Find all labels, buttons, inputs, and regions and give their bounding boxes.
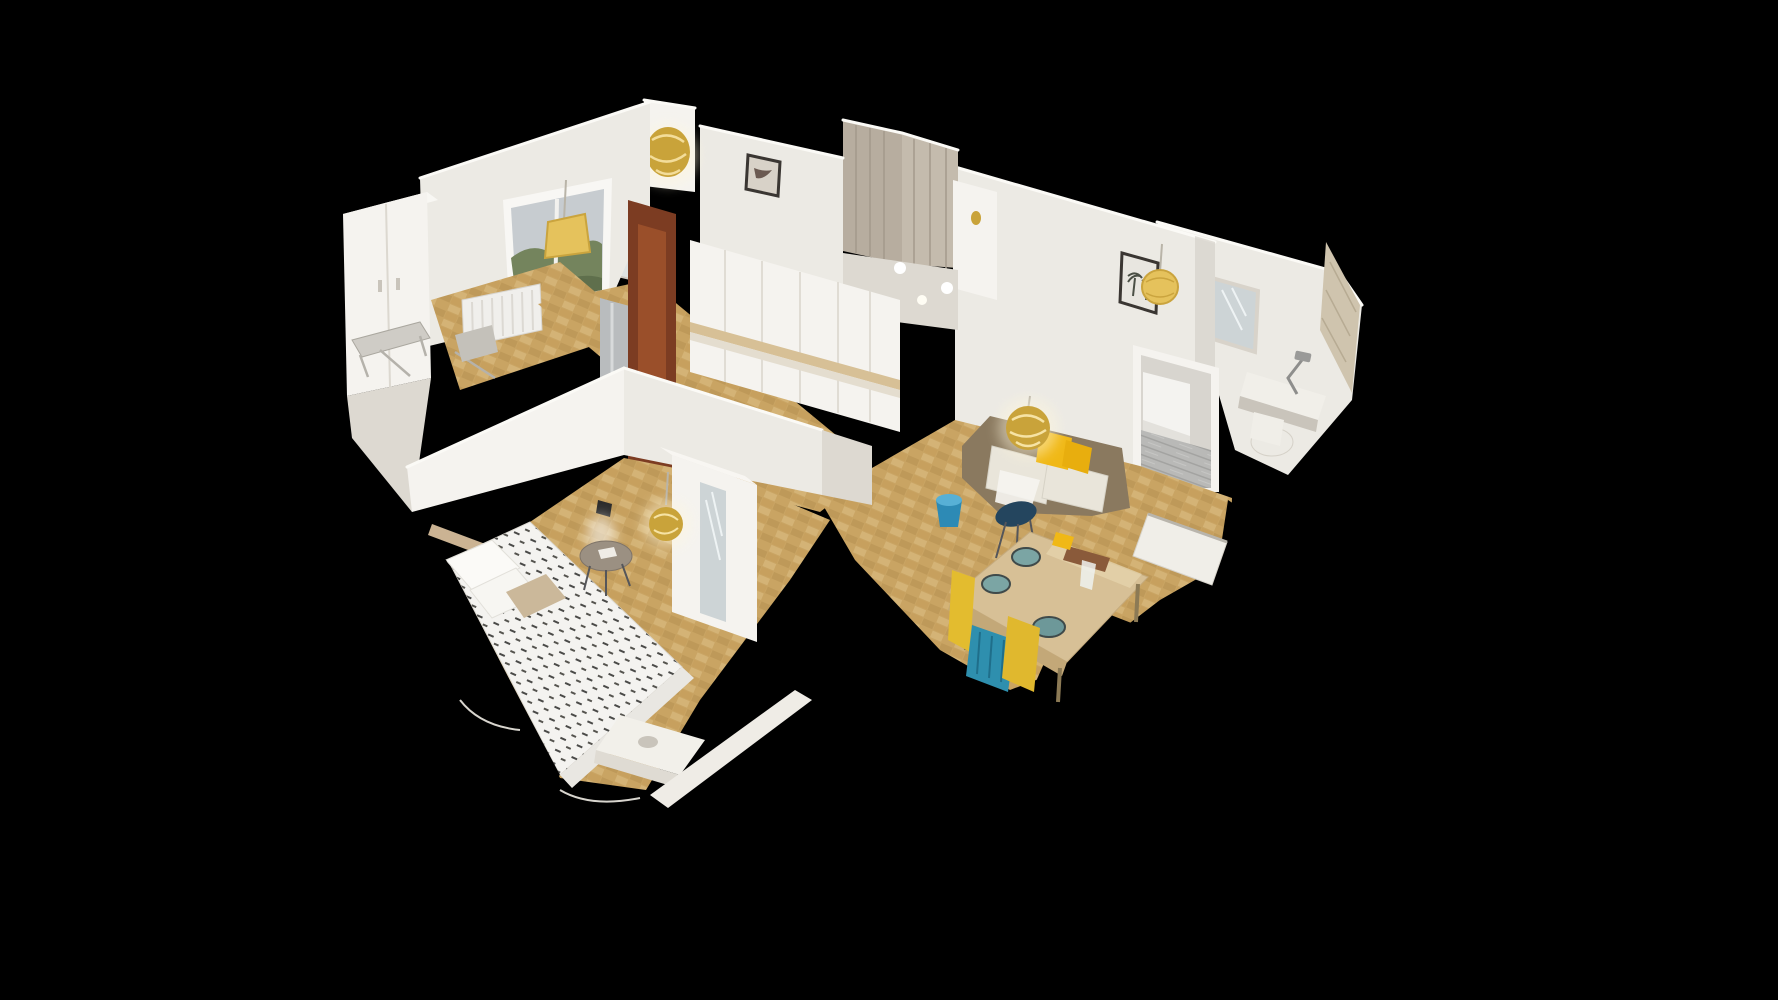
- bucket-rim: [936, 494, 962, 506]
- white-door: [953, 180, 997, 300]
- ceiling-spotlight: [917, 295, 927, 305]
- yellow-lampshade: [545, 214, 590, 258]
- desk-object: [638, 736, 658, 748]
- gold-door-knocker: [971, 211, 981, 225]
- wardrobe-handle: [396, 278, 400, 290]
- grey-plank-wall-left: [843, 120, 902, 264]
- gold-sparkle-pendant: [1006, 406, 1050, 450]
- straw-pendant-lamp: [1142, 270, 1178, 304]
- dollhouse-viewport[interactable]: [0, 0, 1778, 1000]
- ceiling-spotlight: [941, 282, 953, 294]
- teal-bowl: [982, 575, 1010, 593]
- wardrobe-mirror: [700, 482, 726, 622]
- teal-bowl: [1012, 548, 1040, 566]
- wardrobe-handle: [378, 280, 382, 292]
- viewer-stage: [0, 0, 1778, 1000]
- bedroom-gold-pendant: [649, 507, 683, 541]
- ceiling-spotlight: [894, 262, 906, 274]
